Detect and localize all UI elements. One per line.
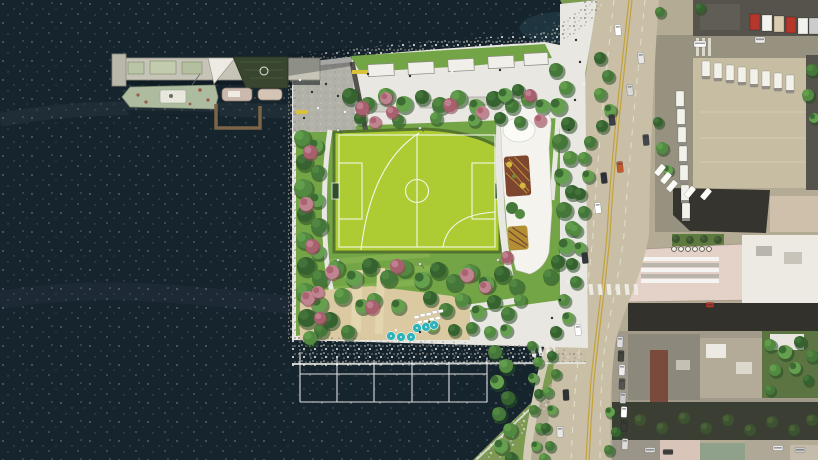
person: [567, 281, 569, 283]
rust-patch: [189, 103, 192, 106]
beach-umbrella: [422, 323, 431, 332]
tree: [788, 424, 800, 436]
planter: [488, 55, 515, 68]
person: [367, 73, 369, 75]
car: [755, 37, 765, 43]
beach-umbrella: [397, 333, 406, 342]
truck: [676, 91, 684, 109]
tree: [806, 414, 818, 426]
car: [619, 364, 625, 375]
pier-head: [112, 54, 126, 86]
person: [337, 95, 339, 97]
tree: [678, 412, 690, 424]
person: [551, 317, 553, 319]
building-tree-pocket: [515, 209, 525, 219]
yellow-bench: [296, 110, 308, 114]
beach-lounger: [417, 320, 422, 324]
car: [594, 202, 601, 214]
person: [559, 299, 561, 301]
beach-lounger: [429, 317, 434, 321]
sports-field: [332, 129, 502, 252]
truck: [677, 109, 685, 127]
beach-lounger: [435, 316, 440, 320]
person: [574, 99, 576, 101]
pier-shadow: [118, 80, 320, 85]
car: [621, 406, 627, 417]
ship-superstructure: [160, 90, 186, 103]
truck: [750, 69, 758, 87]
deck-structure: [182, 62, 202, 74]
goal-west: [332, 183, 339, 199]
person: [311, 91, 313, 93]
truck: [786, 75, 794, 93]
yellow-bench: [352, 70, 368, 74]
planter: [368, 63, 395, 76]
car: [663, 450, 673, 455]
tree: [634, 414, 646, 426]
truck: [702, 61, 710, 79]
tree: [672, 235, 680, 243]
car: [621, 420, 627, 431]
tree: [766, 416, 778, 428]
car: [563, 389, 570, 400]
car: [619, 378, 625, 389]
ship-funnel: [169, 94, 173, 98]
tree: [722, 414, 734, 426]
planter: [408, 61, 435, 74]
roof-unit: [784, 252, 802, 264]
sawtooth-skylights: [641, 257, 719, 283]
car: [638, 52, 645, 63]
car: [615, 24, 622, 35]
car: [620, 392, 626, 403]
person: [499, 69, 501, 71]
roof-unit: [756, 246, 772, 256]
car: [795, 448, 805, 453]
truck: [679, 146, 687, 164]
beach-umbrella: [387, 332, 396, 341]
truck-trailer: [809, 18, 818, 34]
truck-trailer: [774, 16, 784, 32]
person: [317, 107, 319, 109]
car: [643, 134, 650, 145]
truck: [714, 63, 722, 81]
roof-garden-lower: [507, 225, 529, 250]
rust-patch: [144, 100, 147, 103]
deck-structure: [128, 62, 144, 74]
beach-umbrella: [407, 333, 416, 342]
east-wing-building: [742, 235, 818, 303]
beach-lounger: [423, 319, 428, 323]
beach-lounger: [432, 310, 437, 314]
small-boat: [258, 89, 282, 100]
car: [618, 350, 624, 361]
truck-trailer: [786, 17, 796, 33]
truck-trailer: [762, 15, 772, 31]
car: [608, 114, 615, 126]
car: [616, 161, 623, 173]
person: [568, 129, 570, 131]
car: [617, 336, 623, 347]
car: [557, 426, 563, 437]
person: [575, 39, 577, 41]
person: [344, 111, 346, 113]
person: [395, 329, 397, 331]
tan-building: [770, 196, 818, 232]
beach-umbrella: [430, 321, 439, 330]
truck: [738, 67, 746, 85]
deck-structure: [150, 61, 176, 74]
boat-cabin: [228, 91, 240, 97]
scene-svg: [0, 0, 818, 460]
car: [706, 303, 714, 308]
car: [581, 252, 588, 264]
tree: [700, 422, 712, 434]
beach-lounger: [438, 309, 443, 313]
tree: [714, 236, 722, 244]
tree: [656, 422, 668, 434]
planter: [524, 52, 549, 65]
beach-lounger: [414, 315, 419, 319]
shadowed-street: [628, 303, 818, 331]
person: [339, 349, 341, 351]
car: [694, 41, 706, 47]
person: [303, 117, 305, 119]
beach-lounger: [420, 313, 425, 317]
beach-lounger: [426, 312, 431, 316]
planter: [448, 58, 475, 71]
truck: [678, 127, 686, 145]
car: [627, 84, 634, 95]
truck: [726, 65, 734, 83]
bottom-buildings-row: [612, 440, 818, 460]
person: [419, 331, 421, 333]
rust-patch: [206, 98, 209, 101]
car: [622, 438, 628, 449]
rust-patch: [198, 88, 202, 92]
truck: [774, 73, 782, 91]
aerial-site-plan: [0, 0, 818, 460]
car: [600, 172, 607, 184]
tree: [686, 236, 694, 244]
person: [325, 83, 327, 85]
person: [409, 75, 411, 77]
tree: [744, 424, 756, 436]
person: [583, 83, 585, 85]
person: [571, 17, 573, 19]
south-rooftops: [612, 331, 818, 402]
truck-trailer: [798, 18, 808, 34]
person: [451, 71, 453, 73]
truck: [762, 71, 770, 89]
person: [299, 79, 301, 81]
person: [579, 61, 581, 63]
car: [645, 448, 655, 453]
truck: [682, 203, 690, 221]
car: [773, 446, 783, 451]
roof-garden-upper: [504, 155, 532, 197]
car: [575, 324, 582, 335]
tree: [700, 235, 708, 243]
truck-trailer: [750, 14, 760, 30]
rust-patch: [136, 93, 139, 96]
truck: [680, 165, 688, 183]
